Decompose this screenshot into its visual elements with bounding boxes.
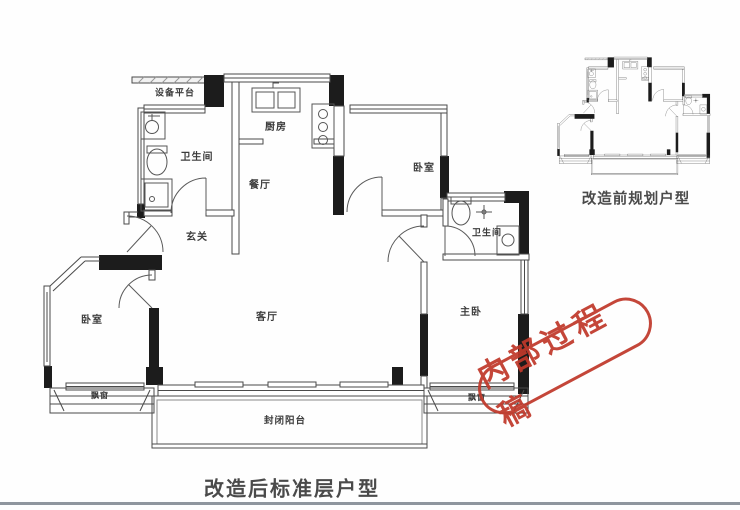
kitchen-sink <box>252 83 300 112</box>
mini-floorplan-drawing <box>557 57 710 175</box>
equipment-platform-hatch <box>132 77 205 83</box>
room-label-master-bedroom: 主卧 <box>460 308 482 318</box>
mini-plan-caption: 改造前规划户型 <box>582 188 691 209</box>
room-label-equipment-platform: 设备平台 <box>155 89 195 98</box>
room-label-bedroom-left: 卧室 <box>81 316 103 326</box>
floorplan-line-art <box>0 0 740 510</box>
room-label-dining: 餐厅 <box>249 181 271 191</box>
room-label-entry: 玄关 <box>186 233 208 243</box>
bathroom-left-toilet <box>147 146 167 175</box>
bathroom-left-tub <box>141 179 172 211</box>
room-label-balcony: 封闭阳台 <box>264 416 306 426</box>
room-label-bedroom-top: 卧室 <box>413 164 435 174</box>
room-label-bathroom-left: 卫生间 <box>181 153 214 163</box>
bathroom-left-sink <box>141 112 165 139</box>
bathroom-right-faucet <box>476 205 492 219</box>
floorplan-page: 设备平台 卫生间 厨房 餐厅 卧室 卫生间 玄关 卧室 客厅 主卧 飘窗 飘窗 … <box>0 0 740 510</box>
room-label-bathroom-right: 卫生间 <box>472 229 502 238</box>
room-label-bay-window-left: 飘窗 <box>91 392 109 400</box>
room-label-living: 客厅 <box>256 313 278 323</box>
room-label-kitchen: 厨房 <box>265 123 287 133</box>
main-plan-caption: 改造后标准层户型 <box>204 473 380 502</box>
bottom-divider <box>0 502 740 505</box>
